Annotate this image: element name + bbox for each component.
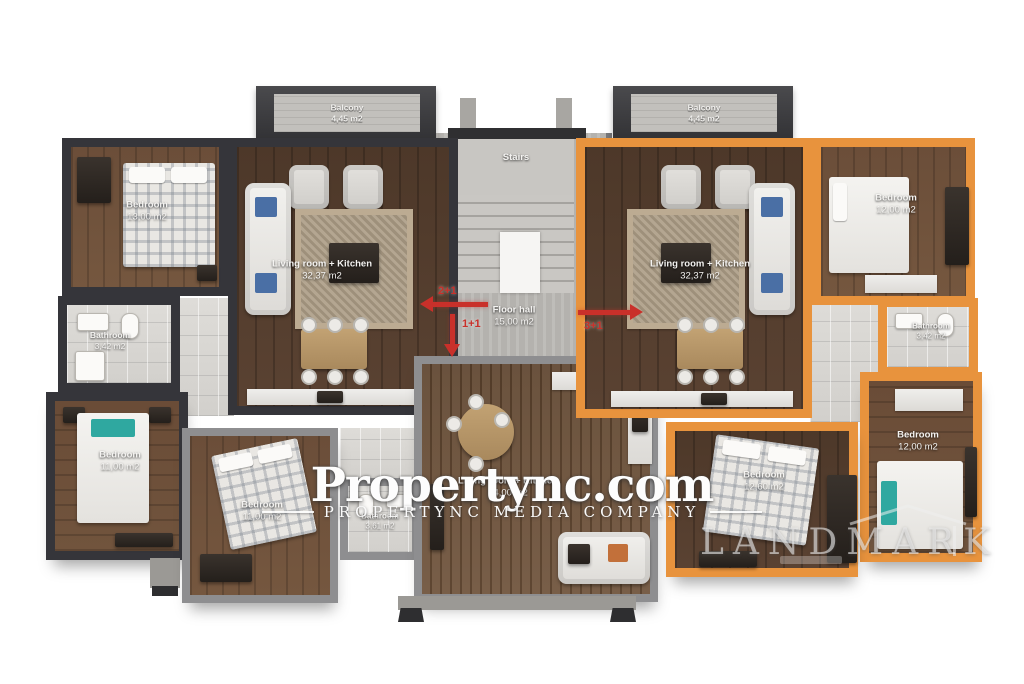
arrow-2plus1-head	[420, 296, 433, 312]
landmark-roof-icon	[848, 502, 968, 526]
pillow	[171, 167, 207, 183]
cushion	[761, 197, 783, 217]
sofa	[245, 183, 291, 315]
balcony-foot	[398, 608, 424, 622]
pillow	[767, 446, 807, 466]
arrow-2plus1	[432, 302, 488, 307]
stair-top-wall	[448, 128, 586, 139]
sofa	[749, 183, 795, 315]
dining-table	[301, 329, 367, 369]
wardrobe	[77, 157, 111, 203]
arrow-2plus1-label: 2+1	[438, 285, 457, 297]
floor-plan-image: Stairs Balcony4,45 m2 Balcony4,45 m2 Bed…	[0, 0, 1024, 684]
chair	[703, 317, 719, 333]
floor-hall-label: Floor hall15,00 m2	[493, 305, 536, 330]
chair	[301, 317, 317, 333]
chair	[327, 317, 343, 333]
chair	[677, 369, 693, 385]
dresser	[865, 275, 937, 293]
arrow-3plus1-label: 3+1	[584, 320, 603, 332]
room-bedroom-topright	[812, 138, 975, 305]
pillow	[722, 439, 762, 459]
dining-table	[677, 329, 743, 369]
arrow-1plus1-head	[444, 344, 460, 357]
bottom-balcony	[398, 596, 636, 610]
room-label: Bathroom3,42 m2	[90, 330, 130, 352]
entrance-step-foot	[152, 586, 178, 596]
dresser	[200, 554, 252, 582]
chair	[494, 412, 510, 428]
chair	[446, 416, 462, 432]
room-label: Living room + Kitchen32,37 m2	[272, 259, 372, 284]
kitchen-counter	[247, 389, 419, 405]
nightstand	[197, 265, 217, 281]
chair	[327, 369, 343, 385]
balcony-left-label: Balcony4,45 m2	[330, 102, 363, 123]
wardrobe	[945, 187, 969, 265]
pillow	[257, 443, 293, 464]
stove	[701, 393, 727, 405]
nightstand	[149, 407, 171, 423]
room-label: Living room + Kitchen32,37 m2	[650, 259, 750, 284]
pillow	[833, 183, 847, 221]
balcony-foot	[610, 608, 636, 622]
chair	[468, 394, 484, 410]
armchair	[343, 165, 383, 209]
cushion	[568, 544, 590, 564]
room-label: Bedroom12,00 m2	[875, 193, 917, 218]
chair	[677, 317, 693, 333]
arrow-1plus1	[450, 314, 455, 346]
armchair	[289, 165, 329, 209]
entrance-step	[150, 558, 180, 588]
landmark-small-text	[780, 556, 842, 564]
armchair	[661, 165, 701, 209]
dresser	[115, 533, 173, 547]
subtitle-rule-left	[262, 511, 314, 513]
subtitle-text: PROPERTYNC MEDIA COMPANY	[324, 503, 701, 521]
stair-landing	[500, 232, 540, 293]
arrow-1plus1-label: 1+1	[462, 318, 481, 330]
arrow-3plus1	[578, 310, 632, 315]
balcony-right-label: Balcony4,45 m2	[687, 102, 720, 123]
bed	[829, 177, 909, 273]
stairs	[458, 139, 574, 195]
kitchen-counter	[611, 391, 793, 407]
arrow-3plus1-head	[630, 304, 643, 320]
pillow	[218, 452, 254, 473]
chair	[301, 369, 317, 385]
stove	[317, 391, 343, 403]
room-label: Bedroom12,60 m2	[743, 470, 785, 495]
chair	[353, 369, 369, 385]
chair	[729, 369, 745, 385]
room-label: Bedroom12,00 m2	[897, 430, 939, 455]
landmark-bar	[953, 526, 956, 556]
room-label: Bedroom11,00 m2	[99, 450, 141, 475]
stairs-label: Stairs	[503, 152, 529, 164]
propertync-subtitle: PROPERTYNC MEDIA COMPANY	[262, 503, 762, 521]
room-label: Bathroom3,42 m2	[912, 322, 950, 343]
pillow	[91, 419, 135, 437]
dresser	[895, 389, 963, 411]
chair	[729, 317, 745, 333]
bed	[211, 438, 317, 550]
cushion	[761, 273, 783, 293]
cushion	[608, 544, 628, 562]
chair	[703, 369, 719, 385]
subtitle-rule-right	[710, 511, 762, 513]
sink	[77, 313, 109, 331]
sofa	[558, 532, 650, 584]
pillow	[129, 167, 165, 183]
room-label: Bedroom13,00 m2	[126, 200, 168, 225]
cushion	[255, 197, 277, 217]
room-bedroom-bottomleft	[46, 392, 188, 560]
shower	[75, 351, 105, 381]
chair	[353, 317, 369, 333]
